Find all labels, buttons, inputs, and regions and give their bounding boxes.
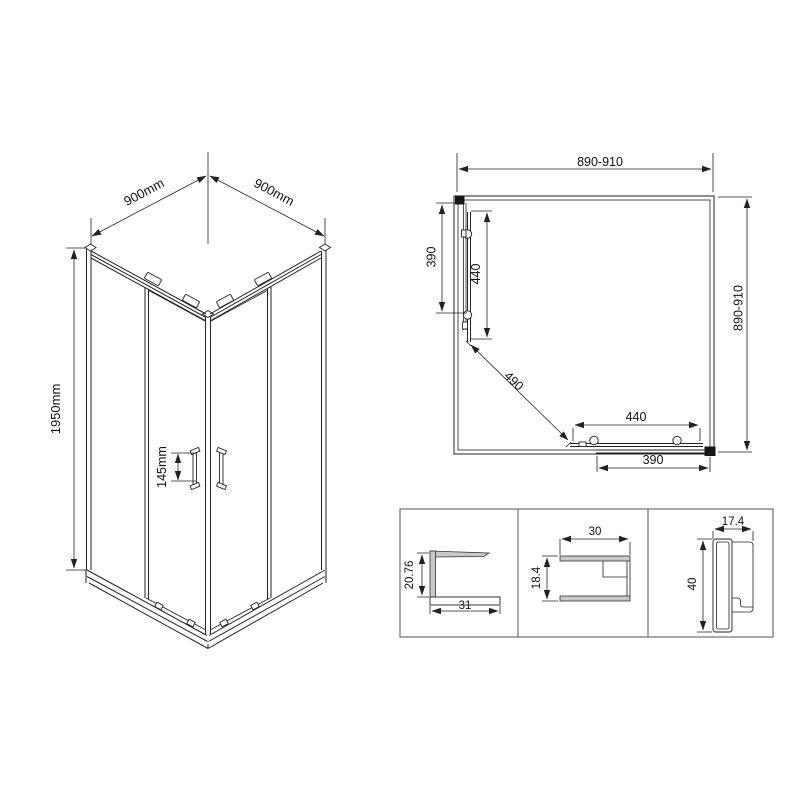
- plan-left-door-dimension: 440: [469, 211, 492, 339]
- profile-details: 20.76 31 30 18.4 17.4: [400, 509, 773, 637]
- plan-width-label: 890-910: [577, 155, 623, 169]
- opening-diagonal-label: 490: [501, 369, 526, 394]
- profile3-width-label: 17.4: [722, 516, 745, 528]
- profile2-height-label: 18.4: [531, 566, 543, 589]
- profile-wall-section: 17.4 40: [687, 516, 753, 632]
- plan-top-dimension: 890-910: [457, 153, 713, 192]
- plan-bottom-panels: [566, 436, 705, 453]
- profile2-width-label: 30: [589, 526, 602, 538]
- handle-dimension: 145mm: [155, 446, 196, 488]
- plan-left-fixed-dimension: 390: [425, 203, 468, 313]
- iso-width-right-label: 900mm: [251, 175, 296, 209]
- height-label: 1950mm: [48, 384, 63, 435]
- corner-posts: [85, 244, 331, 634]
- isometric-view: 900mm 900mm: [48, 152, 331, 649]
- door-bottom-label: 440: [626, 410, 647, 424]
- glass-panels: [145, 287, 271, 599]
- height-dimension: 1950mm: [48, 248, 86, 570]
- fixed-left-label: 390: [425, 247, 439, 268]
- drawing-svg: 900mm 900mm: [0, 0, 800, 800]
- top-rails: [91, 251, 321, 321]
- profile1-width-label: 31: [459, 600, 472, 612]
- profile-u-section: 30 18.4: [531, 526, 630, 601]
- iso-width-left-label: 900mm: [121, 175, 166, 209]
- door-handles: [190, 447, 226, 489]
- profile1-height-label: 20.76: [404, 561, 416, 590]
- technical-drawing-sheet: 900mm 900mm: [0, 0, 800, 800]
- profile-c-section: 20.76 31: [404, 551, 500, 614]
- plan-bottom-fixed-dimension: 390: [597, 453, 710, 472]
- plan-right-dimension: 890-910: [718, 197, 752, 452]
- plan-diagonal-dimension: 490: [471, 345, 568, 440]
- plan-depth-label: 890-910: [732, 285, 746, 331]
- fixed-bottom-label: 390: [643, 453, 664, 467]
- profile3-height-label: 40: [687, 578, 699, 591]
- plan-view: 490 890-910 890-910 390 440: [425, 153, 753, 472]
- door-left-label: 440: [469, 264, 483, 285]
- handle-spacing-label: 145mm: [155, 446, 169, 488]
